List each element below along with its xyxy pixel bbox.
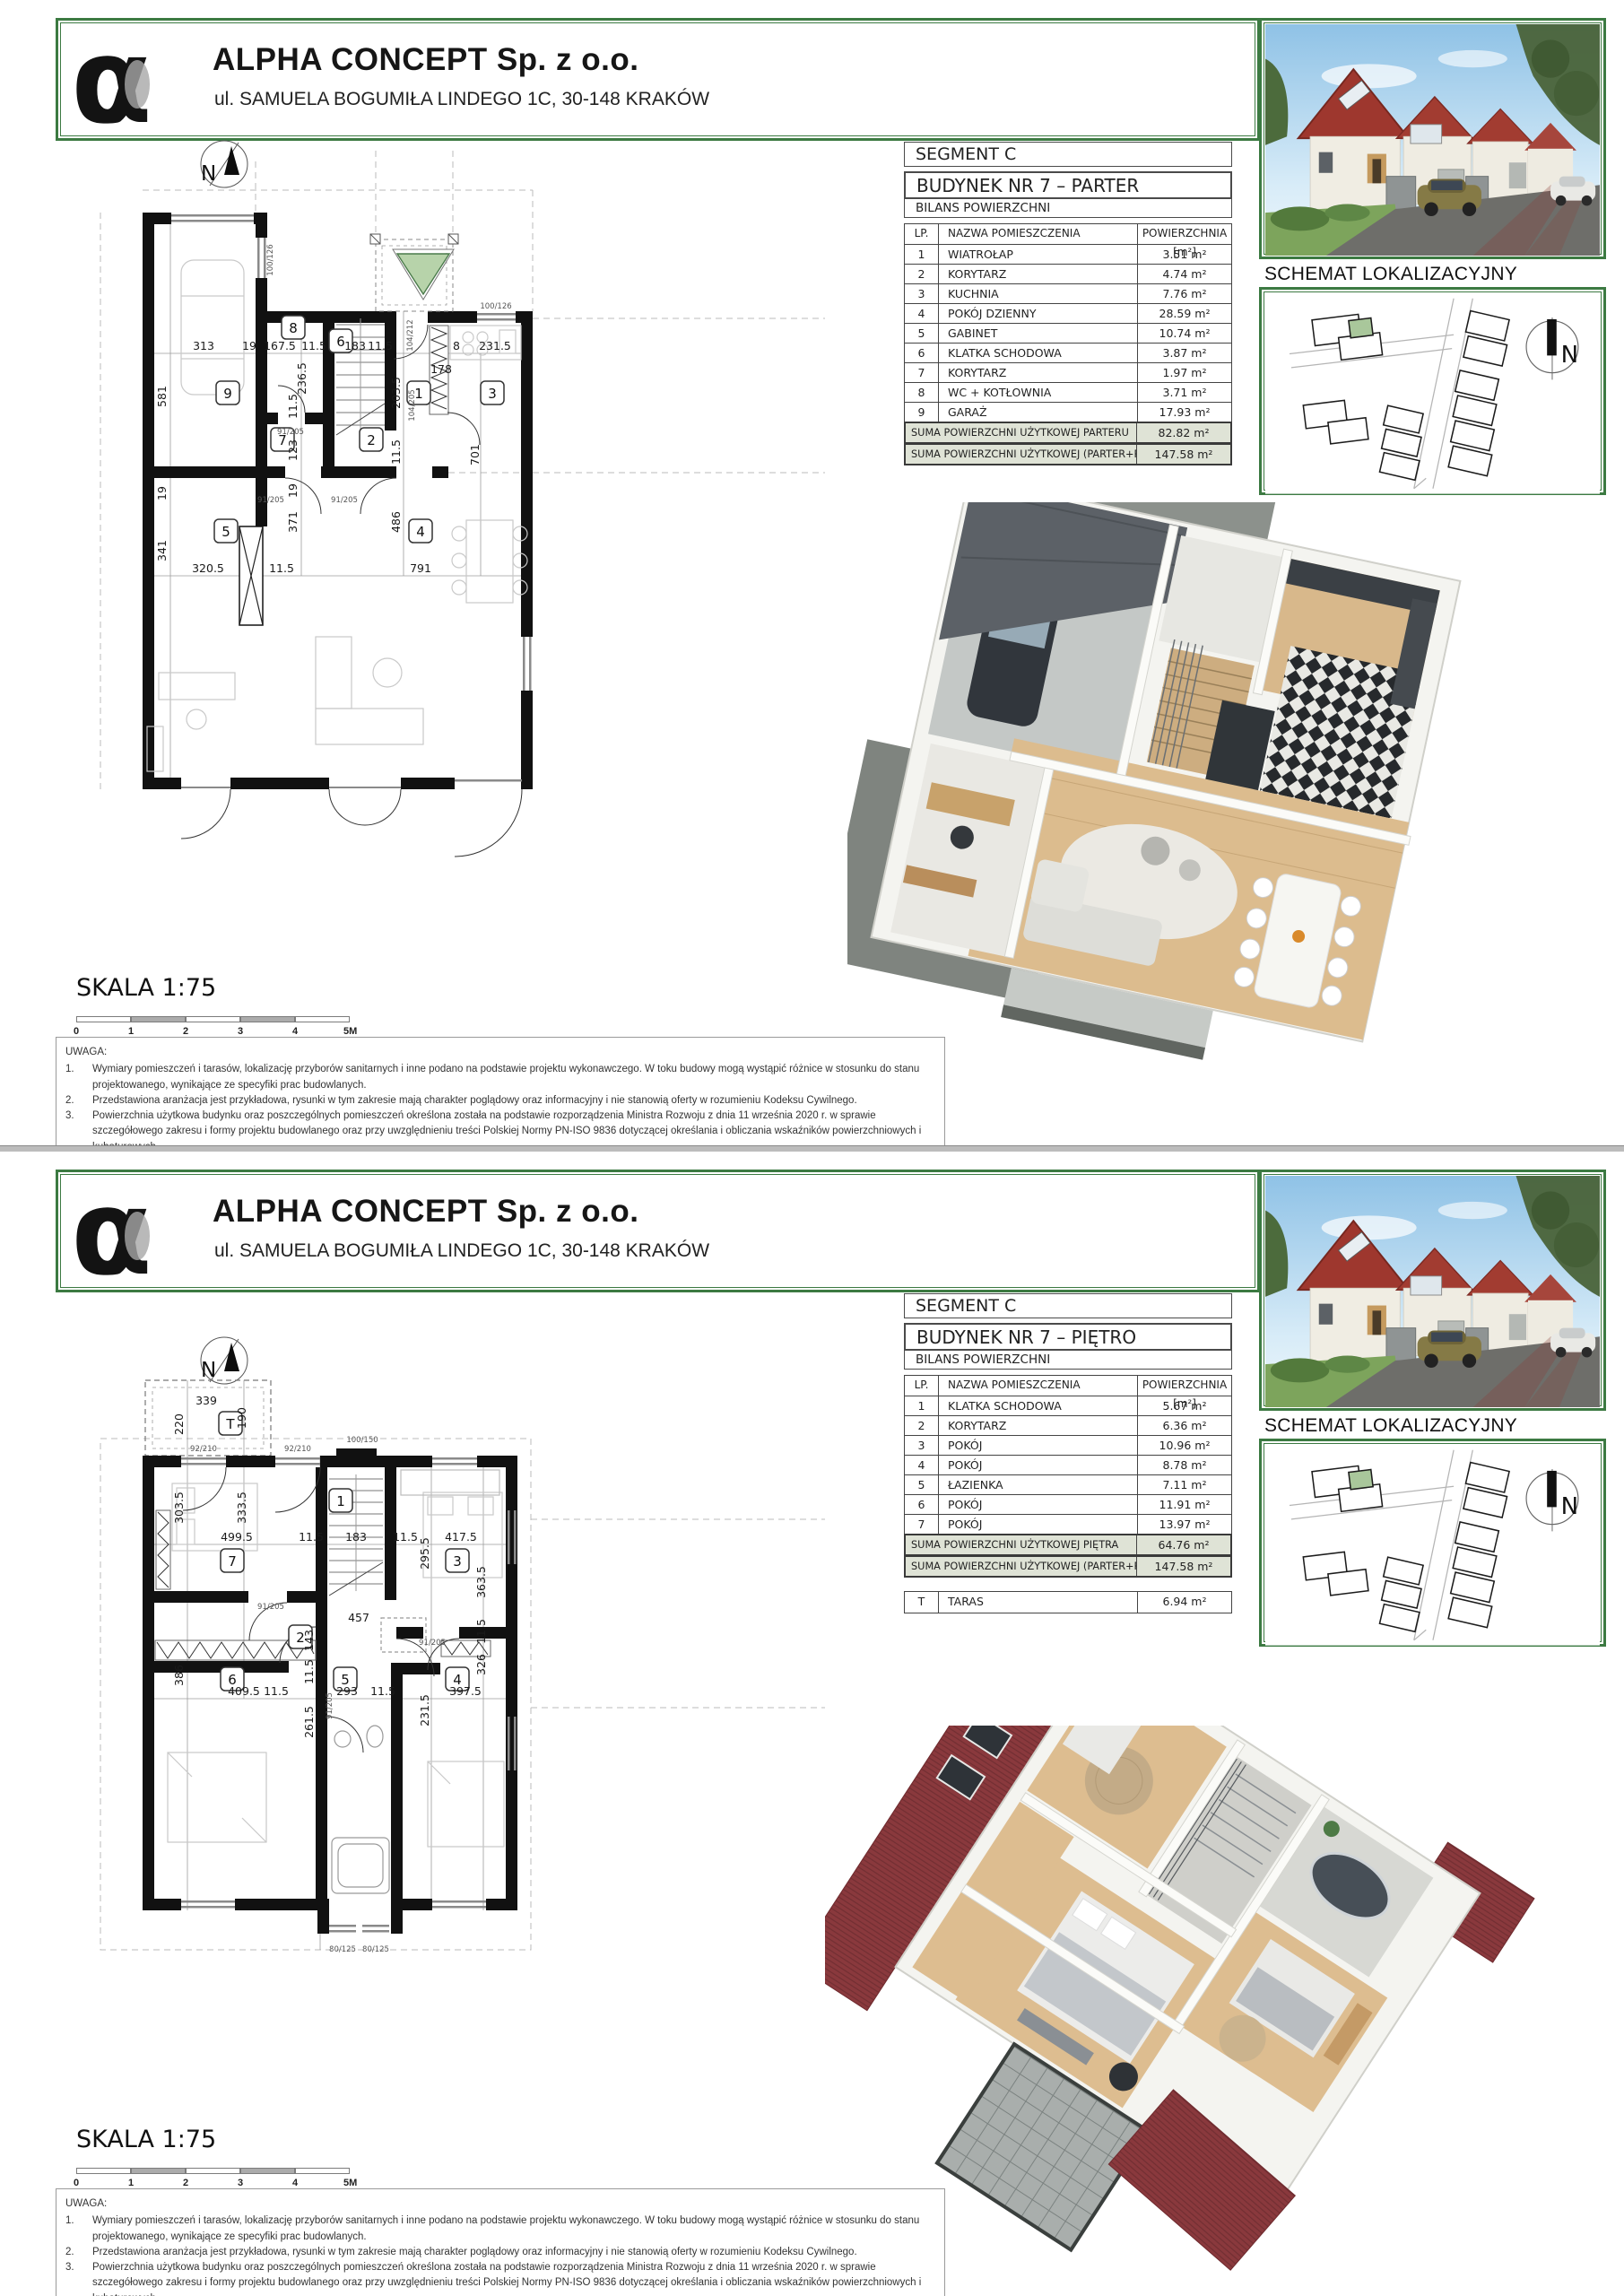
svg-text:8: 8: [453, 339, 460, 352]
svg-text:91/205: 91/205: [257, 1603, 284, 1612]
table-title-pietro: BUDYNEK NR 7 – PIĘTRO: [904, 1323, 1232, 1351]
plan-compass: N: [201, 141, 248, 187]
col-area: POWIERZCHNIA [m²]: [1138, 224, 1231, 244]
svg-text:91/205: 91/205: [257, 496, 284, 505]
sum-row-pietro: SUMA POWIERZCHNI UŻYTKOWEJ PIĘTRA64.76 m…: [904, 1534, 1232, 1556]
svg-text:4: 4: [416, 524, 425, 540]
furniture: [168, 1470, 504, 1847]
notes-title: UWAGA:: [65, 1045, 932, 1060]
svg-text:220: 220: [172, 1413, 186, 1435]
table-row: 4POKÓJ8.78 m²: [905, 1455, 1231, 1474]
svg-text:8: 8: [289, 320, 298, 336]
table-row: 6KLATKA SCHODOWA3.87 m²: [905, 343, 1231, 362]
segment-label: SEGMENT C: [904, 142, 1232, 167]
table-row: 2KORYTARZ4.74 m²: [905, 264, 1231, 283]
svg-text:91/205: 91/205: [277, 428, 304, 437]
company-logo-alpha-icon: α: [71, 26, 195, 132]
siteplan-box: N: [1259, 1439, 1606, 1647]
page-parter: α ALPHA CONCEPT Sp. z o.o. ul. SAMUELA B…: [0, 0, 1624, 1145]
table-row: 9GARAŻ17.93 m²: [905, 402, 1231, 422]
svg-text:303.5: 303.5: [172, 1492, 186, 1524]
table-row: 7POKÓJ13.97 m²: [905, 1514, 1231, 1534]
siteplan-highlighted-unit: [1349, 318, 1373, 338]
notes-box: UWAGA: 1.Wymiary pomieszczeń i tarasów, …: [56, 1037, 945, 1145]
note-item: Powierzchnia użytkowa budynku oraz poszc…: [92, 1109, 932, 1145]
scale-label: SKALA 1:75: [76, 2126, 216, 2153]
svg-text:11.5: 11.5: [474, 1619, 488, 1644]
company-address: ul. SAMUELA BOGUMIŁA LINDEGO 1C, 30-148 …: [214, 89, 709, 110]
page-pietro: α ALPHA CONCEPT Sp. z o.o. ul. SAMUELA B…: [0, 1152, 1624, 2296]
svg-text:91/205: 91/205: [326, 1692, 334, 1719]
svg-text:11.5: 11.5: [393, 1530, 418, 1544]
svg-text:313: 313: [193, 339, 214, 352]
svg-text:293: 293: [336, 1684, 358, 1698]
svg-text:91/205: 91/205: [331, 496, 358, 505]
table-row: 8WC + KOTŁOWNIA3.71 m²: [905, 382, 1231, 402]
svg-text:92/210: 92/210: [190, 1445, 217, 1454]
notes-box: UWAGA: 1.Wymiary pomieszczeń i tarasów, …: [56, 2188, 945, 2296]
svg-text:231.5: 231.5: [479, 339, 511, 352]
sum-row-total: SUMA POWIERZCHNI UŻYTKOWEJ (PARTER+PIĘTR…: [904, 443, 1232, 465]
dimension-labels: 339 220 190 303.5 333.5 499.5 11.5 183 1…: [172, 1394, 488, 1738]
table-header-row: LP. NAZWA POMIESZCZENIA POWIERZCHNIA [m²…: [905, 1376, 1231, 1396]
svg-text:397.5: 397.5: [449, 1684, 482, 1698]
svg-text:19: 19: [155, 486, 169, 500]
siteplan-map: N: [1265, 1445, 1600, 1646]
svg-text:143: 143: [302, 1630, 316, 1651]
svg-text:1: 1: [336, 1493, 345, 1509]
svg-text:178: 178: [430, 362, 452, 376]
schemat-title: SCHEMAT LOKALIZACYJNY: [1264, 1415, 1605, 1437]
svg-text:11.5: 11.5: [269, 561, 294, 575]
estate-photo: [1259, 18, 1606, 259]
area-table-pietro: SEGMENT C BUDYNEK NR 7 – PIĘTRO BILANS P…: [904, 1293, 1232, 1613]
svg-text:261.5: 261.5: [302, 1706, 316, 1738]
svg-text:7: 7: [228, 1553, 237, 1570]
bath-fixtures: [332, 1618, 426, 1893]
table-row: 4POKÓJ DZIENNY28.59 m²: [905, 303, 1231, 323]
svg-text:104/212: 104/212: [406, 319, 415, 351]
svg-text:231.5: 231.5: [418, 1694, 431, 1726]
entry-porch: [370, 234, 458, 311]
svg-text:11.5: 11.5: [286, 394, 300, 419]
schemat-title: SCHEMAT LOKALIZACYJNY: [1264, 264, 1605, 285]
table-row: 5ŁAZIENKA7.11 m²: [905, 1474, 1231, 1494]
svg-text:167.5: 167.5: [264, 339, 296, 352]
svg-text:326: 326: [474, 1654, 488, 1675]
note-item: Wymiary pomieszczeń i tarasów, lokalizac…: [92, 2213, 932, 2245]
company-name: ALPHA CONCEPT Sp. z o.o.: [213, 42, 638, 78]
svg-text:11.5: 11.5: [264, 1684, 289, 1698]
siteplan-box: N: [1259, 287, 1606, 495]
svg-text:80/125: 80/125: [362, 1945, 389, 1954]
svg-text:183: 183: [345, 1530, 367, 1544]
table-row: 2KORYTARZ6.36 m²: [905, 1415, 1231, 1435]
svg-text:295.5: 295.5: [418, 1537, 431, 1570]
render3d-parter: [847, 502, 1592, 1139]
svg-text:5: 5: [221, 524, 230, 540]
floorplan-parter: N: [47, 135, 845, 888]
svg-text:417.5: 417.5: [445, 1530, 477, 1544]
taras-row: T TARAS 6.94 m²: [904, 1591, 1232, 1613]
note-item: Wymiary pomieszczeń i tarasów, lokalizac…: [92, 1062, 932, 1093]
company-logo-alpha-icon: α: [71, 1178, 195, 1283]
svg-text:91/205: 91/205: [419, 1639, 446, 1648]
svg-text:100/126: 100/126: [266, 244, 275, 275]
table-row: 6POKÓJ11.91 m²: [905, 1494, 1231, 1514]
rooms-grid: LP. NAZWA POMIESZCZENIA POWIERZCHNIA [m²…: [904, 1375, 1232, 1535]
estate-photo-illustration: [1265, 1176, 1600, 1407]
svg-text:486: 486: [389, 511, 403, 533]
table-title-parter: BUDYNEK NR 7 – PARTER: [904, 171, 1232, 199]
header-box: α ALPHA CONCEPT Sp. z o.o. ul. SAMUELA B…: [56, 18, 1260, 141]
svg-text:203.5: 203.5: [389, 377, 403, 409]
svg-text:11.5: 11.5: [370, 1684, 395, 1698]
svg-text:104/205: 104/205: [408, 389, 417, 421]
company-name: ALPHA CONCEPT Sp. z o.o.: [213, 1194, 638, 1230]
svg-text:N: N: [1561, 1493, 1578, 1520]
segment-label: SEGMENT C: [904, 1293, 1232, 1318]
svg-text:3: 3: [488, 386, 497, 402]
svg-text:19: 19: [286, 483, 300, 498]
table-row: 7KORYTARZ1.97 m²: [905, 362, 1231, 382]
sum-row-parter: SUMA POWIERZCHNI UŻYTKOWEJ PARTERU82.82 …: [904, 422, 1232, 444]
plan-compass: N: [201, 1337, 248, 1384]
svg-text:19: 19: [242, 339, 256, 352]
col-lp: LP.: [905, 224, 939, 244]
bilans-label: BILANS POWIERZCHNI: [904, 1350, 1232, 1370]
svg-text:236.5: 236.5: [295, 362, 308, 395]
siteplan-map: N: [1265, 293, 1600, 494]
note-item: Przedstawiona aranżacja jest przykładowa…: [92, 1093, 932, 1109]
svg-text:409.5: 409.5: [228, 1684, 260, 1698]
scale-label: SKALA 1:75: [76, 974, 216, 1002]
svg-text:341: 341: [155, 540, 169, 561]
svg-text:11.5: 11.5: [368, 339, 393, 352]
svg-text:333.5: 333.5: [235, 1492, 248, 1524]
header-box: α ALPHA CONCEPT Sp. z o.o. ul. SAMUELA B…: [56, 1170, 1260, 1292]
estate-photo-illustration: [1265, 24, 1600, 256]
notes-title: UWAGA:: [65, 2196, 932, 2212]
company-address: ul. SAMUELA BOGUMIŁA LINDEGO 1C, 30-148 …: [214, 1240, 709, 1262]
floorplan-pietro: N: [47, 1331, 845, 2031]
svg-text:92/210: 92/210: [284, 1445, 311, 1454]
svg-text:386: 386: [172, 1665, 186, 1686]
table-row: 1WIATROŁAP3.51 m²: [905, 244, 1231, 264]
svg-text:123: 123: [286, 439, 300, 461]
svg-text:3: 3: [453, 1553, 462, 1570]
table-header-row: LP. NAZWA POMIESZCZENIA POWIERZCHNIA [m²…: [905, 224, 1231, 244]
svg-text:T: T: [225, 1416, 235, 1432]
svg-text:100/126: 100/126: [480, 302, 511, 311]
svg-text:11.5: 11.5: [301, 339, 326, 352]
table-row: 3POKÓJ10.96 m²: [905, 1435, 1231, 1455]
svg-text:N: N: [201, 162, 216, 186]
svg-text:339: 339: [195, 1394, 217, 1407]
svg-text:701: 701: [468, 444, 482, 465]
table-row: 5GABINET10.74 m²: [905, 323, 1231, 343]
table-row: 3KUCHNIA7.76 m²: [905, 283, 1231, 303]
svg-text:371: 371: [286, 511, 300, 533]
svg-text:183: 183: [344, 339, 366, 352]
svg-text:363.5: 363.5: [474, 1566, 488, 1598]
svg-text:11.5: 11.5: [389, 439, 403, 465]
estate-photo: [1259, 1170, 1606, 1411]
entrance-triangle: [397, 254, 449, 294]
svg-text:791: 791: [410, 561, 431, 575]
svg-text:499.5: 499.5: [221, 1530, 253, 1544]
svg-text:581: 581: [155, 386, 169, 407]
sum-row-total: SUMA POWIERZCHNI UŻYTKOWEJ (PARTER+PIĘTR…: [904, 1555, 1232, 1578]
svg-text:2: 2: [367, 432, 376, 448]
rooms-grid: LP. NAZWA POMIESZCZENIA POWIERZCHNIA [m²…: [904, 223, 1232, 422]
svg-text:320.5: 320.5: [192, 561, 224, 575]
note-item: Przedstawiona aranżacja jest przykładowa…: [92, 2245, 932, 2260]
note-item: Powierzchnia użytkowa budynku oraz poszc…: [92, 2260, 932, 2296]
svg-text:80/125: 80/125: [329, 1945, 356, 1954]
svg-text:190: 190: [235, 1407, 248, 1429]
siteplan-north-label: N: [1561, 342, 1578, 369]
col-name: NAZWA POMIESZCZENIA: [939, 224, 1138, 244]
bilans-label: BILANS POWIERZCHNI: [904, 198, 1232, 218]
siteplan-highlighted-unit: [1349, 1470, 1373, 1490]
svg-text:100/150: 100/150: [346, 1436, 378, 1445]
table-row: 1KLATKA SCHODOWA5.67 m²: [905, 1396, 1231, 1415]
svg-text:11.5: 11.5: [299, 1530, 324, 1544]
svg-text:9: 9: [223, 386, 232, 402]
svg-text:N: N: [201, 1359, 216, 1382]
svg-text:11.5: 11.5: [302, 1659, 316, 1684]
area-table-parter: SEGMENT C BUDYNEK NR 7 – PARTER BILANS P…: [904, 142, 1232, 465]
svg-text:457: 457: [348, 1611, 369, 1624]
